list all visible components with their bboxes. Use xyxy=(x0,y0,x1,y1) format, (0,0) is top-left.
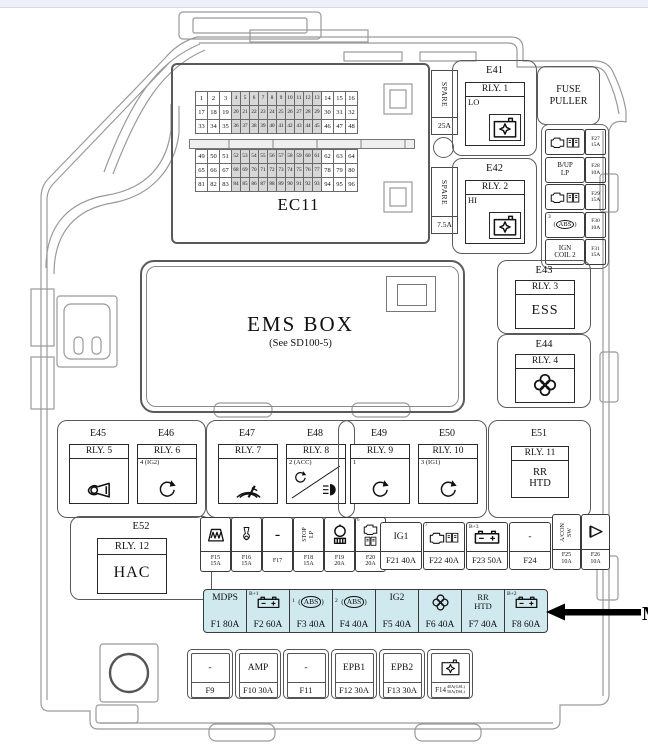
relay-body xyxy=(70,459,128,501)
relay-e48: RLY. 82 (ACC) xyxy=(286,444,346,504)
relay-coil-icon xyxy=(493,215,517,236)
fan-icon xyxy=(532,372,558,398)
relay-group-e49-e50: E49RLY. 91E50RLY. 103 (IG1) xyxy=(338,420,487,518)
right-fuse-F30: 3(ABS)F3010A xyxy=(545,212,605,236)
fuse-label: EPB1 xyxy=(336,654,373,682)
relay-tag: 3 (IG1) xyxy=(421,459,440,466)
fan-icon xyxy=(431,593,450,612)
fuse-function xyxy=(201,518,230,551)
battery-icon xyxy=(515,596,538,608)
relay-id: E52 xyxy=(71,521,211,532)
battery-tag: B+2 xyxy=(507,591,517,597)
fuse-function: - xyxy=(263,518,292,551)
fuse-id: F12 30A xyxy=(336,682,373,697)
relay-name: RLY. 12 xyxy=(98,539,166,555)
engine-icon xyxy=(550,190,565,204)
relay-label: ESS xyxy=(516,295,574,327)
fuse-F3: 1(ABS)F3 40A xyxy=(290,590,333,632)
relay-name: RLY. 1 xyxy=(466,83,524,97)
abs-icon: 1(ABS) xyxy=(298,597,324,606)
mount-hole-icon xyxy=(433,137,454,158)
relay-name: RLY. 10 xyxy=(419,445,477,459)
relay-block-e41: E41 RLY. 1 LO xyxy=(452,60,537,156)
right-fuse-F27: F2715A xyxy=(545,129,605,153)
relay-group-e51: E51 RLY. 11 RR HTD xyxy=(488,420,591,518)
ignition-rotate-icon xyxy=(437,477,459,499)
deicer-icon xyxy=(207,527,225,543)
relay-name: RLY. 7 xyxy=(219,445,277,459)
fuse-label: EPB2 xyxy=(384,654,421,682)
fuse-label: STOPLP xyxy=(302,527,315,542)
relay-icon-slot xyxy=(70,481,128,499)
fuse-function: B+3 xyxy=(467,523,507,551)
fuse-label: - xyxy=(192,654,229,682)
relay-tag: 4 (IG2) xyxy=(140,459,159,466)
relay-group-e47-e48: E47RLY. 7E48RLY. 82 (ACC) xyxy=(206,420,355,518)
fuse-id: F13 30A xyxy=(384,682,421,697)
relay-id: E41 xyxy=(453,65,536,76)
fuse-id: F10 30A xyxy=(240,682,277,697)
fuse-id: F3010A xyxy=(585,212,606,238)
ems-subtitle: (See SD100-5) xyxy=(140,338,461,349)
relay-id: E47 xyxy=(218,428,276,439)
fuse-label: IG2 xyxy=(376,594,418,604)
washer-pump-icon xyxy=(331,524,349,545)
fuse-function xyxy=(545,129,585,155)
relay-name: RLY. 11 xyxy=(512,447,568,461)
ignition-rotate-icon xyxy=(369,477,391,499)
fuse-puller-slot: FUSE PULLER xyxy=(537,66,600,125)
relay-e51: RLY. 11 RR HTD xyxy=(511,446,569,498)
circuit-tag: 1 xyxy=(292,597,295,607)
fuse-id: F5 40A xyxy=(376,620,418,630)
fuse-function: B/UP LP xyxy=(545,157,585,183)
fuse-F18: STOPLPF1815A xyxy=(293,517,324,572)
battery-icon xyxy=(257,596,280,608)
fuse-label: - xyxy=(288,654,325,682)
fuse-frame: EPB1F12 30A xyxy=(335,653,374,698)
relay-tag: HI xyxy=(468,195,477,205)
fuse-id: F7 40A xyxy=(462,620,504,630)
relay-body: 1 xyxy=(351,459,409,501)
wiper-icon xyxy=(235,481,262,499)
ec11-pin: 16 xyxy=(345,91,358,106)
fuse-frame: -F9 xyxy=(191,653,230,698)
fuse-function xyxy=(582,515,609,549)
fuse-amps: 40A(GSL)50A(DSL) xyxy=(447,685,465,694)
engine-icon xyxy=(363,522,378,536)
fuse-function xyxy=(232,518,261,551)
ec11-pin-grid-top: 1234567891011121314151617181920212223242… xyxy=(196,92,358,134)
fuse-F8: B+2F8 60A xyxy=(505,590,547,632)
ec11-pin: 64 xyxy=(345,149,358,164)
ec11-divider xyxy=(189,139,415,149)
relay-id: E44 xyxy=(498,339,590,350)
relay-block-e42: E42 RLY. 2 HI xyxy=(452,158,537,254)
fuse-id: F3 40A xyxy=(290,620,332,630)
circuit-tag: 2 xyxy=(335,597,338,607)
relay-group-e45-e46: E45RLY. 5E46RLY. 64 (IG2) xyxy=(57,420,206,518)
relay-id: E49 xyxy=(350,428,408,439)
relay-icon-slot xyxy=(419,477,477,499)
fuse-id: F9 xyxy=(192,682,229,697)
relay-id: E43 xyxy=(498,265,590,276)
fuse-F19: F1920A xyxy=(324,517,355,572)
fuse-F25: A/CONSWF2510A xyxy=(552,514,581,570)
fuse-id: F3115A xyxy=(585,239,606,265)
fuse-id: F21 40A xyxy=(381,551,421,568)
ec11-pin-grid-bottom: 4950515253545556575859606162636465666768… xyxy=(196,150,358,192)
relay-label: HAC xyxy=(98,555,166,591)
highlighted-fuse-row: MDPSF1 80AB+1F2 60A1(ABS)F3 40A2(ABS)F4 … xyxy=(203,589,548,633)
fuse-id: F2915A xyxy=(585,184,606,210)
fuse-id: F17 xyxy=(263,551,292,570)
arrow-icon: M xyxy=(546,598,648,628)
ignition-rotate-icon xyxy=(156,477,178,499)
fuse-function: A/CONSW xyxy=(553,515,580,549)
ec11-pin-row: 81828384858687888990919293949596 xyxy=(196,177,358,192)
fan-icon-slot xyxy=(516,369,574,401)
fuse-F15: F1515A xyxy=(200,517,231,572)
fuse-F22: 7F22 40A xyxy=(423,522,465,570)
fuse-function xyxy=(325,518,354,551)
relay-coil-icon xyxy=(493,117,517,138)
fuse-frame: AMPF10 30A xyxy=(239,653,278,698)
ec11-pin-row: 49505152535455565758596061626364 xyxy=(196,149,358,164)
relay-name: RLY. 2 xyxy=(466,181,524,195)
relay-name: RLY. 3 xyxy=(516,281,574,295)
fuse-function xyxy=(545,184,585,210)
fuse-label xyxy=(432,654,469,682)
ec11-pin: 48 xyxy=(345,119,358,134)
fuse-F11: -F11 xyxy=(283,649,329,699)
ec11-pin: 96 xyxy=(345,177,358,192)
fuse-F23: B+3F23 50A xyxy=(466,522,508,570)
battery-icon xyxy=(474,530,500,544)
fuse-function: IG1 xyxy=(381,523,421,551)
fuse-label: RRHTD xyxy=(462,593,504,610)
fuse-id: F8 60A xyxy=(505,620,547,630)
fuse-id: F1615A xyxy=(232,551,261,570)
fuse-id: F1515A xyxy=(201,551,230,570)
fuse-F12 30A: EPB1F12 30A xyxy=(331,649,377,699)
relay-e45: RLY. 5 xyxy=(69,444,129,504)
fuse-id: F2510A xyxy=(553,549,580,567)
relay-body xyxy=(219,459,277,501)
relay-id: E42 xyxy=(453,163,536,174)
ems-title: EMS BOX xyxy=(140,312,461,337)
fuse-box-diagram: 1234567891011121314151617181920212223242… xyxy=(0,0,648,754)
fuse-F5: IG2F5 40A xyxy=(376,590,419,632)
relay-name: RLY. 4 xyxy=(516,355,574,369)
abs-icon: 2(ABS) xyxy=(341,597,367,606)
ecu-book-icon xyxy=(566,136,580,149)
relay-icon-slot xyxy=(219,481,277,499)
relay-name: RLY. 9 xyxy=(351,445,409,459)
relay-body: 4 (IG2) xyxy=(138,459,196,501)
relay-tag: 1 xyxy=(353,459,356,466)
fuse-F9: -F9 xyxy=(187,649,233,699)
fuse-label: MDPS xyxy=(204,594,246,604)
fuse-F2: B+1F2 60A xyxy=(247,590,290,632)
relay-name: RLY. 5 xyxy=(70,445,128,459)
fuse-F16: F1615A xyxy=(231,517,262,572)
ec11-pin-row: 33343536373839404142434445464748 xyxy=(196,119,358,134)
fuse-F1: MDPSF1 80A xyxy=(204,590,247,632)
fuse-function: - xyxy=(510,523,550,551)
blower-wedge-icon xyxy=(587,524,604,539)
fuse-label: AMP xyxy=(240,654,277,682)
ec11-pin-row: 65666768697071727374757677787980 xyxy=(196,163,358,178)
fuse-frame: -F11 xyxy=(287,653,326,698)
callout-arrow: M xyxy=(546,598,648,628)
circuit-digit: 6 xyxy=(357,518,360,523)
right-fuse-F28: B/UP LPF2810A xyxy=(545,157,605,181)
engine-icon xyxy=(429,530,445,545)
right-fuse-column: F2715AB/UP LPF2810AF2915A3(ABS)F3010AIGN… xyxy=(541,124,609,269)
fuse-id: F1815A xyxy=(294,551,323,570)
relay-block-e43: E43 RLY. 3 ESS xyxy=(497,260,591,334)
ecu-book-icon xyxy=(364,535,377,547)
fuse-id: F2610A xyxy=(582,549,609,567)
fuse-frame: EPB2F13 30A xyxy=(383,653,422,698)
circuit-tag: 3 xyxy=(548,214,551,222)
relay-icon-slot xyxy=(138,477,196,499)
fuse-F24: -F24 xyxy=(509,522,551,570)
relay-block-e44: E44 RLY. 4 xyxy=(497,334,591,408)
fuse-id: F6 40A xyxy=(419,620,461,630)
ecu-book-icon xyxy=(445,531,459,544)
fuse-F26: F2610A xyxy=(581,514,610,570)
fuse-F17: -F17 xyxy=(262,517,293,572)
relay-e49: RLY. 91 xyxy=(350,444,410,504)
relay-body: 3 (IG1) xyxy=(419,459,477,501)
fuse-F10 30A: AMPF10 30A xyxy=(235,649,281,699)
fuse-F7: RRHTDF7 40A xyxy=(462,590,505,632)
spare-label: SPARE xyxy=(440,81,449,106)
fuse-id: F22 40A xyxy=(424,551,464,568)
relay-label: RR HTD xyxy=(512,461,568,495)
abs-icon: 3(ABS) xyxy=(554,220,577,230)
fuse-id: F1440A(GSL)50A(DSL) xyxy=(432,682,469,697)
horn-icon xyxy=(86,481,113,499)
fuse-id: F24 xyxy=(510,551,550,568)
relay-coil-icon-box xyxy=(489,114,521,141)
fuse-function: STOPLP xyxy=(294,518,323,551)
relay-icon-slot xyxy=(287,464,345,500)
relay-icon-slot xyxy=(351,477,409,499)
fuse-id: F2715A xyxy=(585,129,606,155)
relay-id: E48 xyxy=(286,428,344,439)
ems-connector-detail xyxy=(386,276,436,312)
relay-id: E51 xyxy=(511,428,567,439)
fuse-id: F2 60A xyxy=(247,620,289,630)
fuse-function: 3(ABS) xyxy=(545,212,585,238)
arrow-label: M xyxy=(642,603,648,625)
fuse-F21: IG1F21 40A xyxy=(380,522,422,570)
ec11-pin: 32 xyxy=(345,105,358,120)
engine-icon xyxy=(550,135,565,149)
relay-e50: RLY. 103 (IG1) xyxy=(418,444,478,504)
fuse-id: F1920A xyxy=(325,551,354,570)
relay-id: E46 xyxy=(137,428,195,439)
ec11-pin-row: 12345678910111213141516 xyxy=(196,91,358,106)
fuse-id: F4 40A xyxy=(333,620,375,630)
ec11-label: EC11 xyxy=(171,195,426,215)
relay-id: E50 xyxy=(418,428,476,439)
fuse-F14: F1440A(GSL)50A(DSL) xyxy=(427,649,473,699)
fuse-id: F23 50A xyxy=(467,551,507,568)
spare-label: SPARE xyxy=(440,179,449,204)
relay-name: RLY. 8 xyxy=(287,445,345,459)
horn-small-icon xyxy=(241,526,252,543)
relay-tag: LO xyxy=(468,97,479,107)
fuse-id: F1 80A xyxy=(204,620,246,630)
relay-e47: RLY. 7 xyxy=(218,444,278,504)
battery-tag: B+1 xyxy=(249,591,259,597)
fuse-F4: 2(ABS)F4 40A xyxy=(333,590,376,632)
relay-coil-icon-box xyxy=(489,212,521,239)
battery-tag: B+3 xyxy=(469,524,479,530)
fuse-id: F11 xyxy=(288,682,325,697)
relay-coil-icon xyxy=(441,659,460,676)
relay-id: E45 xyxy=(69,428,127,439)
ec11-pin: 80 xyxy=(345,163,358,178)
fuse-id: F2810A xyxy=(585,157,606,183)
fuse-function: 7 xyxy=(424,523,464,551)
right-fuse-F29: F2915A xyxy=(545,184,605,208)
fuse-F13 30A: EPB2F13 30A xyxy=(379,649,425,699)
relay-name: RLY. 6 xyxy=(138,445,196,459)
relay-tag: 2 (ACC) xyxy=(289,459,312,466)
ecu-book-icon xyxy=(566,191,580,204)
relay-body: 2 (ACC) xyxy=(287,459,345,501)
relay-block-e52: E52 RLY. 12 HAC xyxy=(70,516,212,600)
relay-e46: RLY. 64 (IG2) xyxy=(137,444,197,504)
fuse-F6: F6 40A xyxy=(419,590,462,632)
ec11-pin-row: 17181920212223242526272829303132 xyxy=(196,105,358,120)
acc-headlight-icon xyxy=(290,464,342,500)
fuse-frame: F1440A(GSL)50A(DSL) xyxy=(431,653,470,698)
